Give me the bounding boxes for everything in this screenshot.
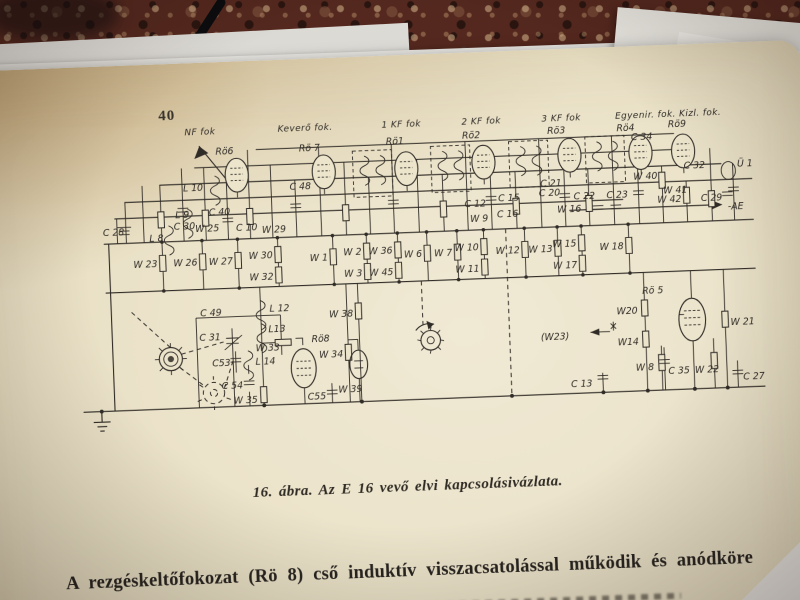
label-c22: C 22 [573,191,595,203]
label-w6: W 6 [404,249,423,261]
label-w30: W 30 [248,250,273,262]
label-w2: W 2 [343,247,362,259]
label-l9: L 9 [175,210,190,222]
label-w36: W 36 [368,246,393,258]
label-c34: C 34 [631,132,653,144]
label-w7: W 7 [434,248,453,260]
label-w33: W 33 [256,342,281,354]
label-w23p: (W23) [541,331,570,343]
label-w42: W 42 [657,194,682,206]
label-w13: W 13 [528,244,553,256]
label-c53: C53 [212,358,231,370]
label-w23: W 23 [133,259,158,271]
book-page: 40 [0,40,800,600]
cutoff-text-line [381,593,681,600]
label-u1: Ü 1 [737,158,753,170]
label-w34: W 34 [319,349,344,361]
label-w10: W 10 [454,242,479,254]
label-c49: C 49 [200,307,222,319]
stage-kf1: 1 KF fok [381,119,421,131]
label-w40: W 40 [633,171,658,183]
dial-knob-icon [154,343,187,376]
label-l12: L 12 [269,303,290,315]
label-c55: C55 [308,391,327,403]
label-w39: W 39 [338,384,363,396]
label-w15: W 15 [552,239,577,251]
label-c12: C 12 [464,199,486,211]
tube-ro3: Rö3 [547,125,566,137]
label-w9: W 9 [470,214,489,226]
label-c32: C 32 [683,160,705,172]
tube-ro7: Rö 7 [299,143,321,155]
body-text: A rezgéskeltőfokozat (Rö 8) cső induktív… [66,547,790,596]
label-c35: C 35 [668,365,690,377]
tuning-knob-icon [416,320,445,354]
label-l8: L 8 [149,233,164,245]
label-c40: C 40 [209,207,231,219]
label-w35: W 35 [234,395,259,407]
label-c15: C 15 [498,193,520,205]
label-w18: W 18 [599,241,624,253]
label-w27: W 27 [209,256,234,268]
label-c54: C 54 [221,380,243,392]
stage-kf3: 3 KF fok [541,113,581,125]
label-c16: C 16 [497,209,519,221]
label-l10: L 10 [183,183,204,195]
label-w22: W 22 [695,364,720,376]
label-w8: W 8 [636,362,655,374]
label-w11: W 11 [455,264,479,276]
output-labels: W20 (W23) W14 C 13 W 8 C 35 W 22 W 21 C … [540,301,765,392]
tube-ro1: Rö1 [386,136,405,148]
label-w25: W 25 [195,223,220,235]
stage-kf2: 2 KF fok [461,116,501,128]
figure-caption: 16. ábra. Az E 16 vevő elvi kapcsolásivá… [252,469,672,502]
photo-of-book-page: 40 [0,0,800,600]
label-w1: W 1 [310,253,329,265]
tube-ro2: Rö2 [462,130,481,142]
stage-nf: NF fok [184,127,216,138]
label-w21: W 21 [730,316,754,328]
page-number: 40 [158,108,176,126]
label-c13: C 13 [571,379,593,391]
tube-ro8: Rö8 [311,333,330,345]
label-c48: C 48 [289,181,311,193]
label-c31: C 31 [199,332,221,344]
label-w14: W14 [618,337,640,349]
stage-mixer: Keverő fok. [277,123,332,135]
label-c30: C 30 [174,221,196,233]
label-w45: W 45 [369,267,394,279]
label-l14: L 14 [255,356,276,368]
label-w38: W 38 [329,309,354,321]
label-w3: W 3 [344,268,363,280]
label-c10: C 10 [236,222,258,234]
label-ae: -AE [728,201,744,213]
label-c27: C 27 [743,371,765,383]
label-w32: W 32 [249,272,274,284]
label-w20: W20 [616,306,638,318]
label-w16: W 16 [557,204,582,216]
label-c29: C 29 [701,192,723,204]
label-w12: W 12 [496,245,521,257]
label-l13: L13 [268,324,286,336]
tube-ro5: Rö 5 [642,285,664,297]
label-w29: W 29 [262,224,287,236]
ground-icon [94,411,111,431]
tube-ro9: Rö9 [668,119,687,131]
label-w26: W 26 [173,258,198,270]
label-c28: C 28 [103,228,125,240]
circuit-schematic: NF fok Keverő fok. 1 KF fok 2 KF fok 3 K… [69,103,782,437]
label-w17: W 17 [553,260,578,272]
label-c21: C 21 [540,178,562,190]
output-section [588,269,743,393]
label-c23: C 23 [606,190,628,202]
tube-ro6: Rö6 [215,146,234,158]
